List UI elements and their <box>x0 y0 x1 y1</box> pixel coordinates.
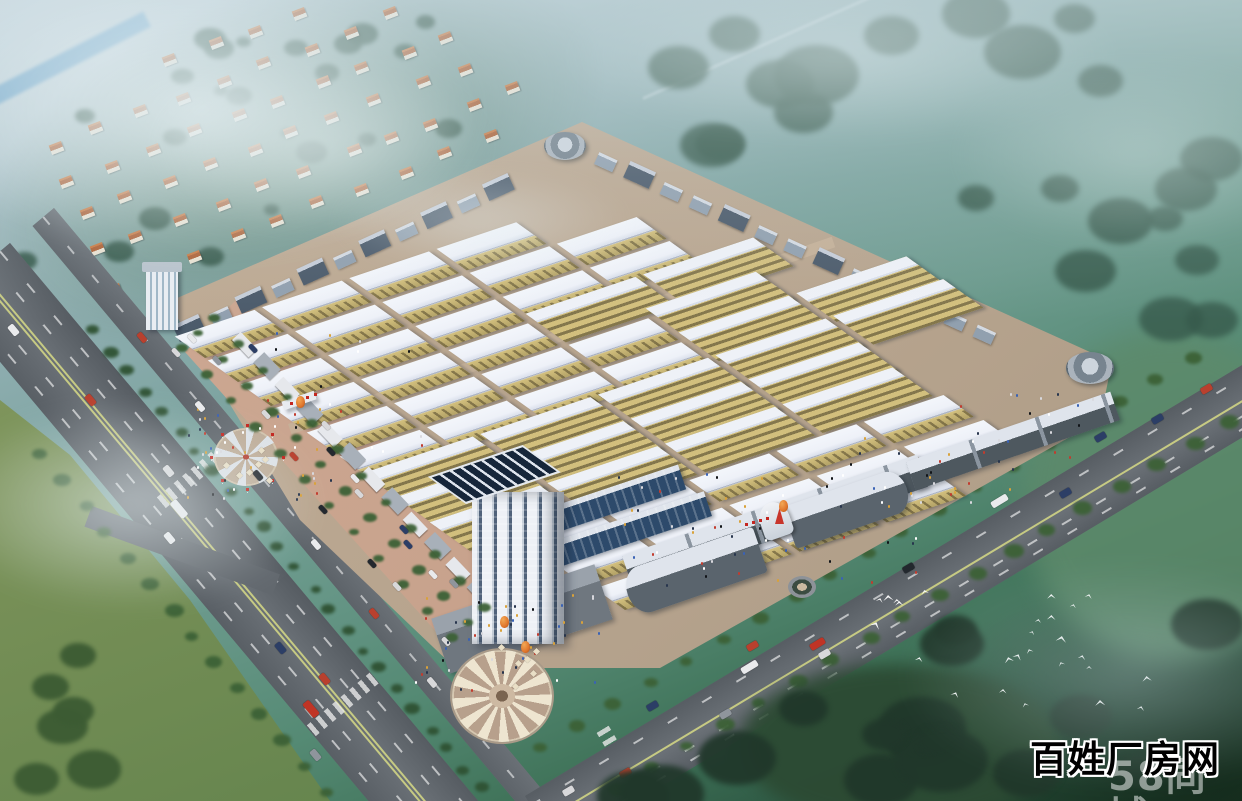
aerial-rendering-industrial-park: 58同城 百姓厂房网 <box>0 0 1242 801</box>
atmosphere-veil <box>0 0 1242 801</box>
site-watermark: 百姓厂房网 <box>1030 741 1220 778</box>
